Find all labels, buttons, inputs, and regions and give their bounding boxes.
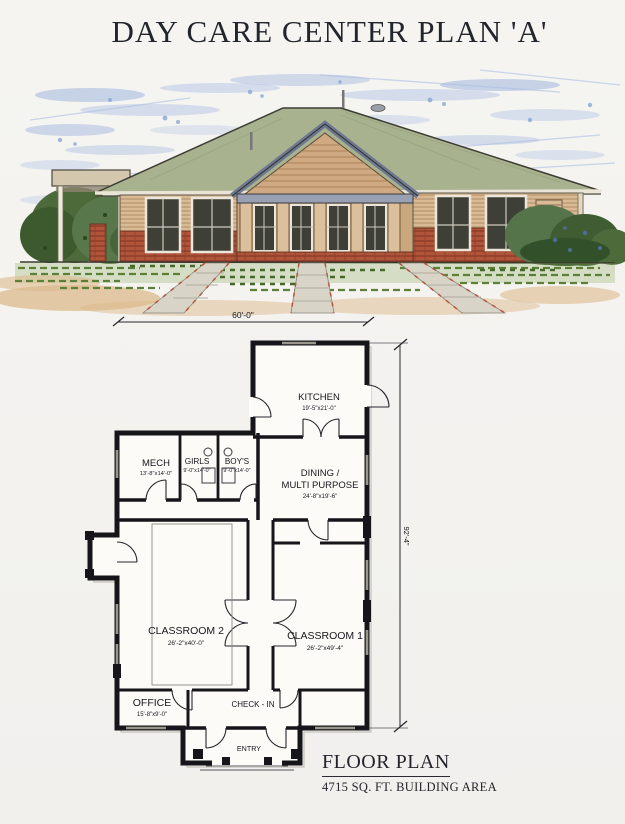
- room-dims-classroom2: 26'-2"x40'-0": [168, 640, 205, 647]
- left-wing-facade: [120, 195, 247, 262]
- room-dims-mech: 13'-8"x14'-0": [140, 471, 172, 477]
- dimension-label-60ft: 60'-0": [232, 310, 254, 320]
- roof-vent-pipe: [342, 90, 345, 108]
- room-dims-office: 15'-8"x9'-0": [137, 712, 167, 718]
- room-dims-kitchen: 19'-5"x21'-0": [302, 406, 336, 412]
- room-label-office: OFFICE: [133, 697, 172, 709]
- room-label-girls: GIRLS: [185, 457, 210, 466]
- floor-plan-drawing: 92'-4" KITCHEN 19'-5"x21'-0" MECH 13'-8"…: [0, 335, 625, 783]
- room-dims-girls: 9'-0"x14'-0": [183, 468, 210, 474]
- floor-plan-caption: FLOOR PLAN: [322, 751, 450, 777]
- room-label-dining-1: DINING /: [301, 468, 340, 479]
- right-bushes: [505, 205, 625, 266]
- ground-and-landscape: [0, 262, 620, 316]
- room-label-boys: BOY'S: [225, 457, 250, 466]
- building-area-caption: 4715 SQ. FT. BUILDING AREA: [322, 780, 497, 795]
- room-label-classroom2: CLASSROOM 2: [148, 625, 224, 637]
- room-label-entry: ENTRY: [237, 744, 261, 753]
- plan-height-dimension: 92'-4": [369, 339, 411, 732]
- window: [436, 196, 470, 250]
- scanned-architectural-sheet: { "page": { "title": "DAY CARE CENTER PL…: [0, 0, 625, 824]
- room-dims-dining: 24'-8"x19'-6": [303, 493, 338, 500]
- room-label-checkin: CHECK - IN: [231, 700, 274, 709]
- front-elevation-rendering: 60'-0": [0, 60, 625, 330]
- room-label-mech: MECH: [142, 458, 170, 469]
- window: [146, 198, 180, 252]
- room-dims-boys: 9'-0"x14'-0": [223, 468, 250, 474]
- dimension-label-92ft: 92'-4": [402, 526, 411, 545]
- sheet-title: DAY CARE CENTER PLAN 'A': [0, 14, 625, 50]
- room-label-classroom1: CLASSROOM 1: [287, 630, 363, 642]
- room-dims-classroom1: 26'-2"x49'-4": [307, 645, 344, 652]
- roof-vent-cap: [371, 105, 385, 112]
- window: [192, 198, 232, 252]
- entablature-band: [237, 194, 413, 203]
- room-label-dining-2: MULTI PURPOSE: [282, 480, 359, 491]
- room-label-kitchen: KITCHEN: [298, 392, 340, 403]
- roof-vent-pipe: [250, 132, 253, 150]
